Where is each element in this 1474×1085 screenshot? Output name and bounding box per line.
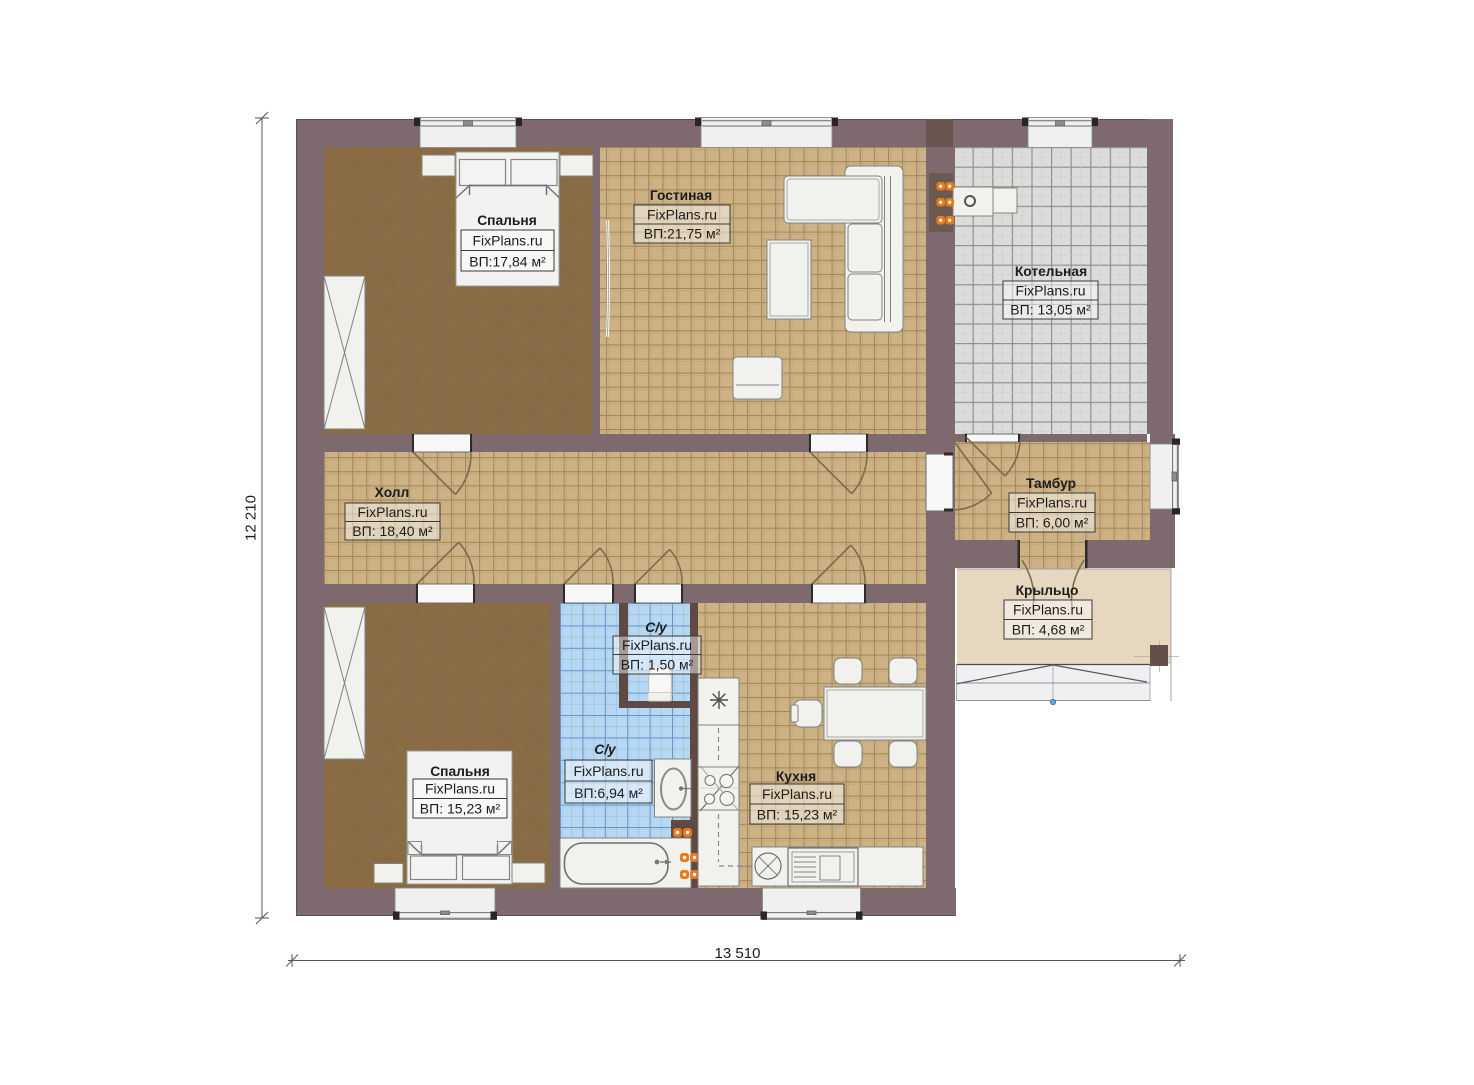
svg-text:ВП: 15,23 м²: ВП: 15,23 м² <box>420 801 501 817</box>
svg-text:FixPlans.ru: FixPlans.ru <box>573 763 643 779</box>
svg-text:С/у: С/у <box>645 620 668 635</box>
svg-text:ВП: 4,68 м²: ВП: 4,68 м² <box>1012 622 1085 638</box>
svg-text:FixPlans.ru: FixPlans.ru <box>647 207 717 223</box>
svg-text:FixPlans.ru: FixPlans.ru <box>622 637 692 653</box>
svg-text:Тамбур: Тамбур <box>1026 476 1076 491</box>
svg-text:ВП:17,84 м²: ВП:17,84 м² <box>469 254 546 270</box>
svg-text:FixPlans.ru: FixPlans.ru <box>357 504 427 520</box>
svg-text:Котельная: Котельная <box>1015 264 1087 279</box>
svg-text:ВП:21,75 м²: ВП:21,75 м² <box>644 226 721 242</box>
svg-text:FixPlans.ru: FixPlans.ru <box>1017 495 1087 511</box>
svg-text:12 210: 12 210 <box>243 495 260 541</box>
svg-text:FixPlans.ru: FixPlans.ru <box>1015 283 1085 299</box>
svg-text:Кухня: Кухня <box>776 769 816 784</box>
svg-text:FixPlans.ru: FixPlans.ru <box>762 786 832 802</box>
svg-text:ВП:6,94 м²: ВП:6,94 м² <box>574 785 643 801</box>
svg-text:FixPlans.ru: FixPlans.ru <box>1013 602 1083 618</box>
svg-text:Спальня: Спальня <box>477 213 537 228</box>
svg-text:С/у: С/у <box>594 742 617 757</box>
svg-text:ВП: 13,05 м²: ВП: 13,05 м² <box>1010 302 1091 318</box>
svg-text:ВП: 15,23 м²: ВП: 15,23 м² <box>757 807 838 823</box>
svg-text:ВП: 18,40 м²: ВП: 18,40 м² <box>352 523 433 539</box>
svg-text:ВП: 6,00 м²: ВП: 6,00 м² <box>1016 515 1089 531</box>
svg-text:Гостиная: Гостиная <box>650 188 712 203</box>
svg-text:FixPlans.ru: FixPlans.ru <box>472 233 542 249</box>
svg-text:ВП: 1,50 м²: ВП: 1,50 м² <box>621 657 694 673</box>
svg-text:FixPlans.ru: FixPlans.ru <box>425 781 495 797</box>
svg-text:13 510: 13 510 <box>715 945 761 962</box>
svg-text:Крыльцо: Крыльцо <box>1016 583 1079 598</box>
svg-text:Холл: Холл <box>375 485 410 500</box>
svg-text:Спальня: Спальня <box>430 764 490 779</box>
